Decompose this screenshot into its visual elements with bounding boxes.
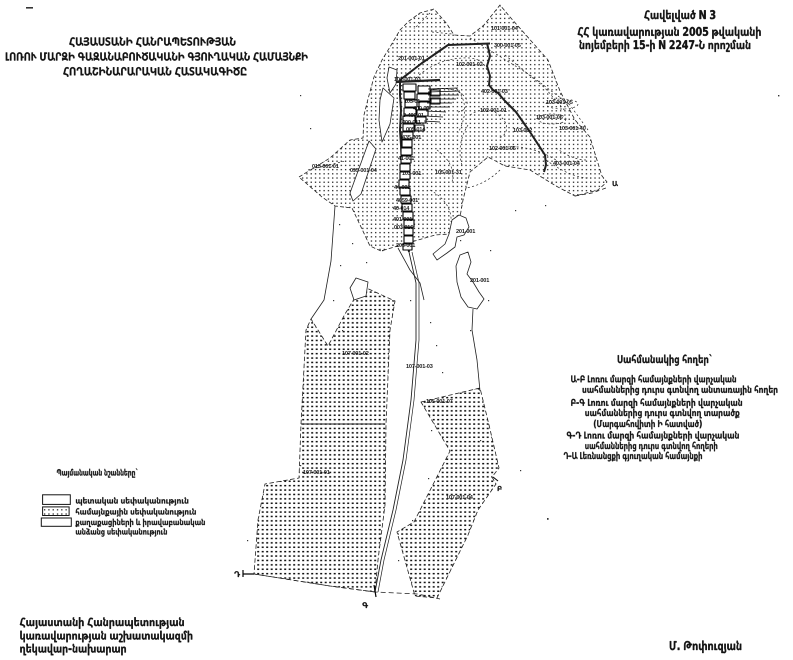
svg-text:201-001-01: 201-001-01 (398, 56, 425, 62)
svg-text:201-001: 201-001 (470, 278, 489, 284)
svg-text:300-001-05: 300-001-05 (494, 43, 521, 49)
svg-text:107-001-01: 107-001-01 (303, 470, 330, 476)
svg-text:103-001-06: 103-001-06 (536, 115, 563, 121)
svg-text:005-014: 005-014 (406, 127, 426, 133)
svg-text:44-001: 44-001 (394, 185, 410, 191)
svg-text:105-001-07: 105-001-07 (426, 399, 453, 405)
svg-text:103-001-05: 103-001-05 (546, 100, 573, 106)
svg-text:201-001: 201-001 (456, 229, 475, 235)
svg-text:103-001: 103-001 (402, 171, 421, 177)
svg-text:102-001-01: 102-001-01 (480, 108, 507, 114)
svg-text:003-016: 003-016 (394, 225, 413, 231)
svg-text:41-001: 41-001 (398, 156, 414, 162)
svg-text:102-001-05: 102-001-05 (489, 146, 516, 152)
svg-text:107-001-04: 107-001-04 (446, 495, 474, 501)
svg-text:401-001: 401-001 (393, 217, 412, 223)
svg-text:107-001-03: 107-001-03 (406, 364, 433, 370)
svg-text:101-001-03: 101-001-03 (394, 77, 421, 83)
svg-text:402-001-03: 402-001-03 (481, 89, 508, 95)
svg-text:101-001-04: 101-001-04 (491, 26, 519, 32)
svg-text:095-001-04: 095-001-04 (350, 168, 378, 174)
svg-text:4059-001: 4059-001 (396, 198, 418, 204)
svg-text:400-00: 400-00 (413, 106, 429, 112)
svg-text:107-001-02: 107-001-02 (342, 351, 369, 357)
svg-text:103-001-40: 103-001-40 (559, 126, 586, 132)
svg-text:105-01: 105-01 (404, 99, 420, 105)
svg-text:403-001-04: 403-001-04 (553, 161, 581, 167)
svg-text:015-001-01: 015-001-01 (312, 164, 339, 170)
svg-text:400-011: 400-011 (402, 120, 421, 126)
svg-text:103-002: 103-002 (513, 128, 532, 134)
svg-text:435-001: 435-001 (402, 135, 421, 141)
svg-text:40-014: 40-014 (393, 206, 410, 212)
svg-text:203-001: 203-001 (396, 243, 415, 249)
svg-text:102-001-02: 102-001-02 (456, 62, 483, 68)
svg-text:105-001-31: 105-001-31 (435, 170, 462, 176)
svg-text:3-400-01: 3-400-01 (403, 113, 424, 119)
